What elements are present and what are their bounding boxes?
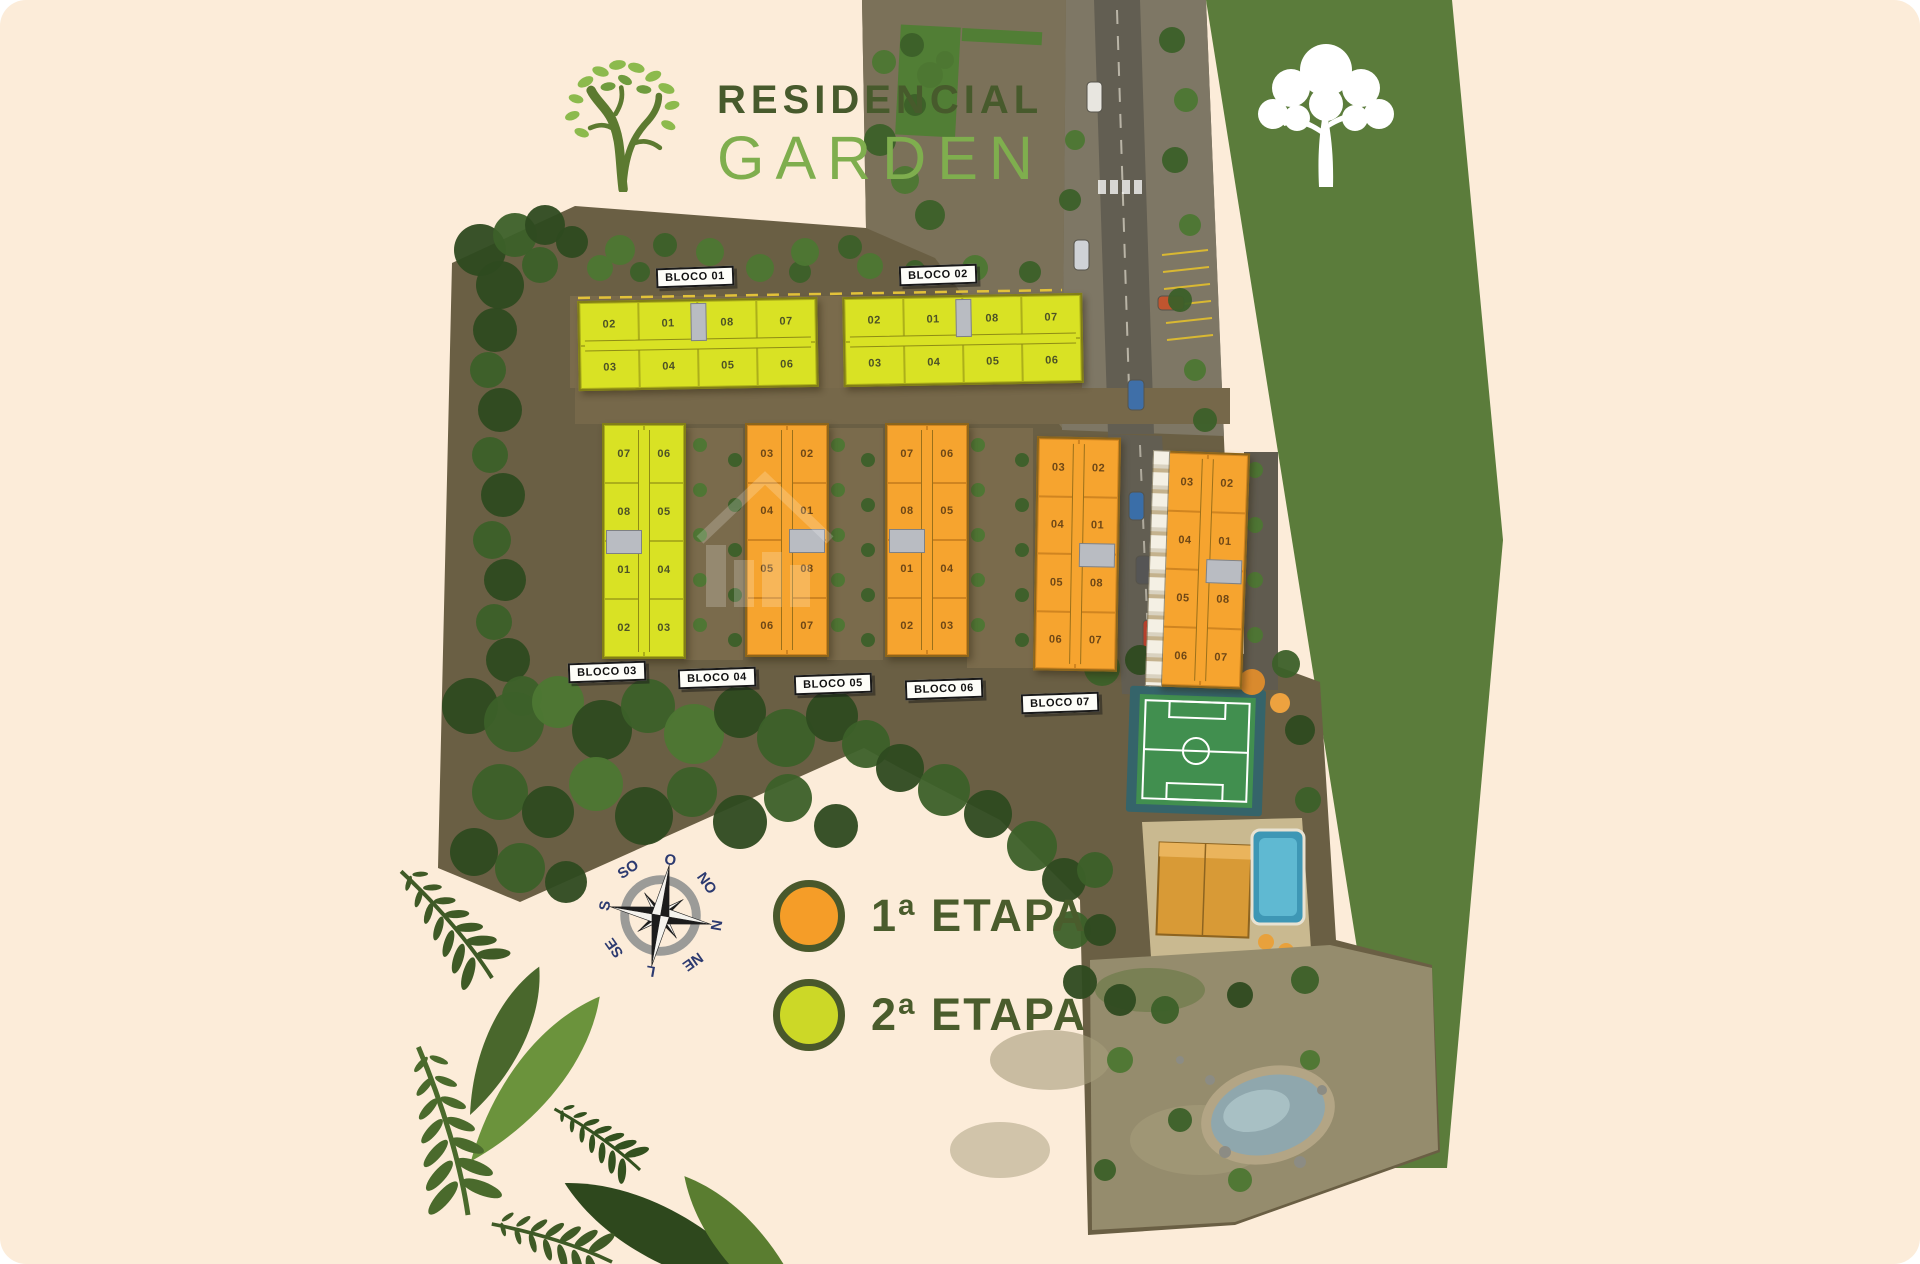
- sign-bloco-03: BLOCO 03: [568, 661, 646, 684]
- bloco-signs: BLOCO 01BLOCO 02BLOCO 03BLOCO 04BLOCO 05…: [0, 0, 1920, 1264]
- poster: 0201080703040506020108070304050607060805…: [0, 0, 1920, 1264]
- sign-bloco-01: BLOCO 01: [656, 266, 734, 289]
- sign-bloco-05: BLOCO 05: [794, 673, 872, 696]
- sign-bloco-06: BLOCO 06: [905, 678, 983, 701]
- sign-bloco-02: BLOCO 02: [899, 264, 977, 287]
- sign-bloco-04: BLOCO 04: [678, 667, 756, 690]
- sign-bloco-07: BLOCO 07: [1021, 692, 1099, 715]
